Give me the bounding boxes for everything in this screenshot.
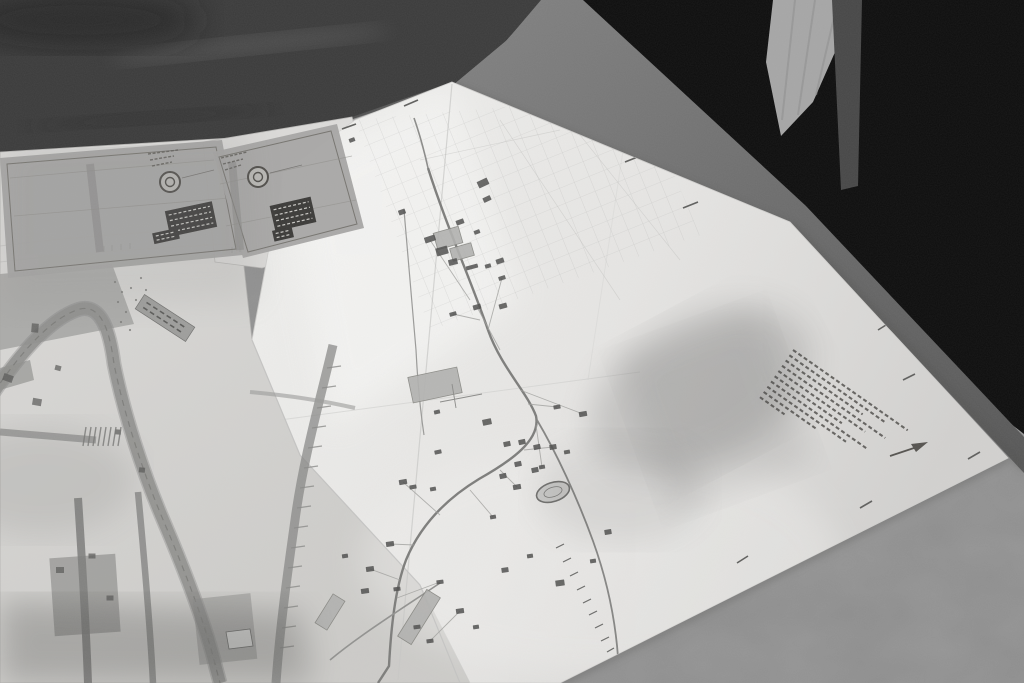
film-grain-overlay [0, 0, 1024, 683]
scene-svg [0, 0, 1024, 683]
photo-canvas [0, 0, 1024, 683]
